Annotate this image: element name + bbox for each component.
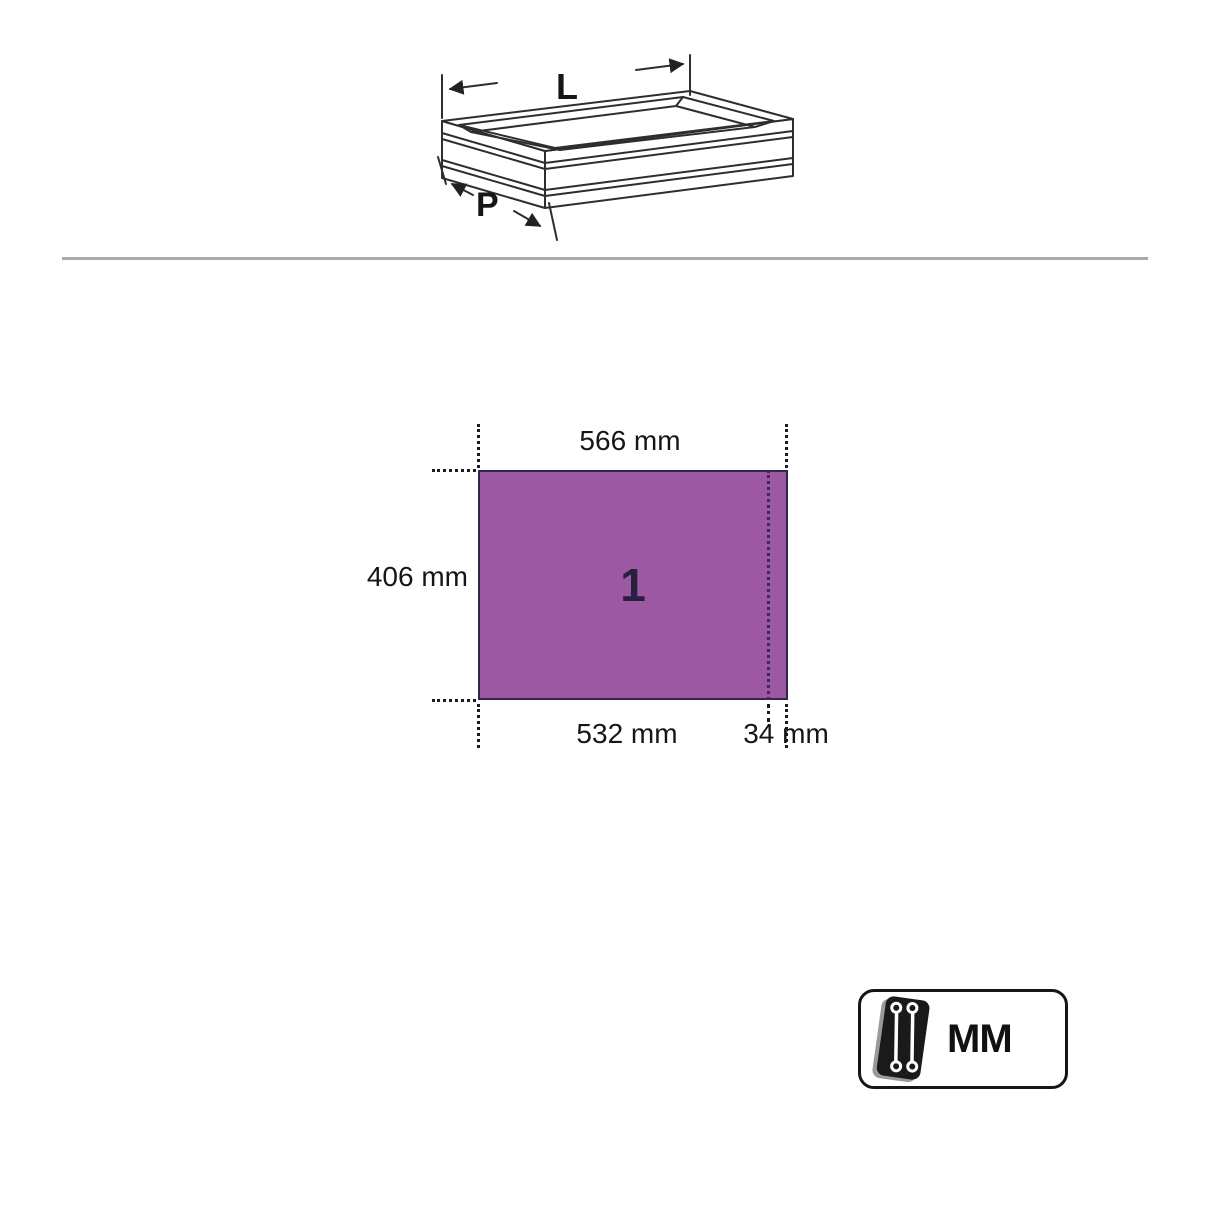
guide-line-panel-inner bbox=[767, 470, 770, 700]
guide-line-bottom-left-horizontal bbox=[432, 699, 476, 702]
section-divider bbox=[62, 257, 1148, 260]
wrench-tray-icon bbox=[867, 992, 939, 1086]
dim-top-width-label: 566 mm bbox=[530, 426, 730, 456]
panel-number-label: 1 bbox=[620, 558, 646, 612]
depth-dimension-label: P bbox=[476, 186, 499, 224]
dim-bottom-width-label: 532 mm bbox=[527, 719, 727, 749]
panel-rect: 1 bbox=[478, 470, 788, 700]
length-dimension-label: L bbox=[556, 66, 578, 107]
drawer-isometric-drawing: L P bbox=[415, 40, 815, 255]
guide-line-top-left-vertical bbox=[477, 424, 480, 468]
guide-line-top-left-horizontal bbox=[432, 469, 476, 472]
dim-left-height-label: 406 mm bbox=[330, 562, 468, 592]
page: L P 566 mm 1 406 mm bbox=[0, 0, 1214, 1214]
dim-edge-width-label: 34 mm bbox=[716, 719, 856, 749]
guide-line-top-right-vertical bbox=[785, 424, 788, 468]
measurement-unit-badge: MM bbox=[858, 989, 1068, 1089]
unit-label: MM bbox=[947, 1017, 1012, 1062]
guide-line-bottom-left-vertical bbox=[477, 704, 480, 748]
